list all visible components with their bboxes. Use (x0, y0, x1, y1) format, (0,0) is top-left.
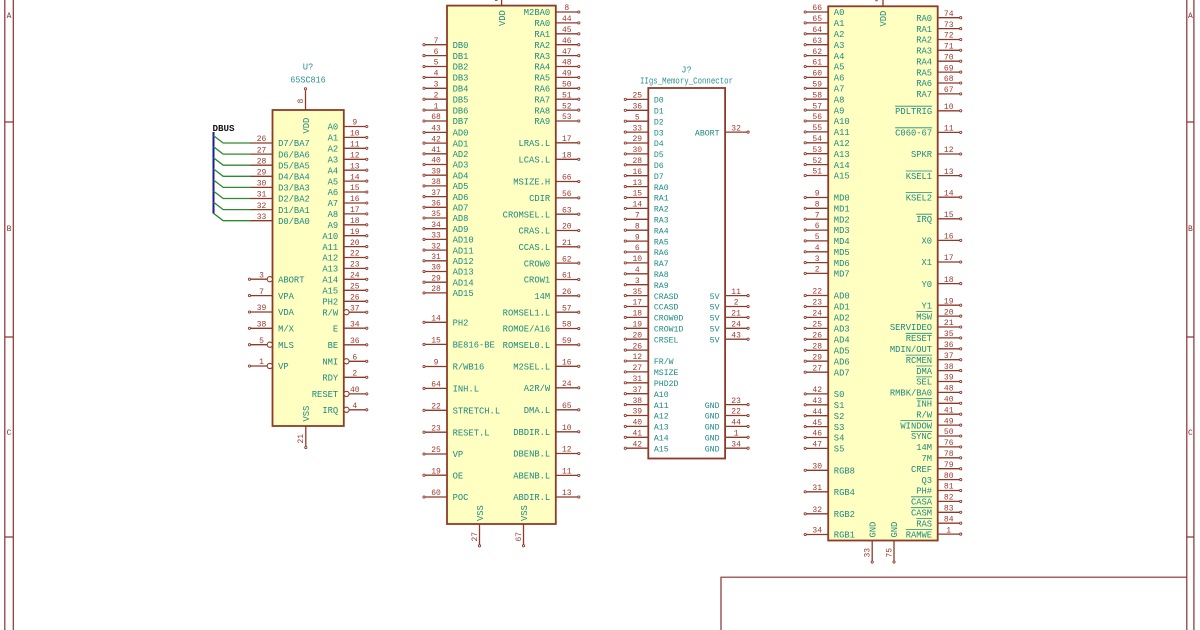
svg-text:LCAS.L: LCAS.L (519, 156, 551, 166)
svg-text:65: 65 (812, 15, 822, 24)
svg-text:GND: GND (890, 522, 900, 538)
svg-text:11: 11 (562, 468, 572, 477)
svg-text:DBENB.L: DBENB.L (513, 450, 550, 460)
svg-text:13: 13 (562, 489, 572, 498)
svg-text:A8: A8 (328, 210, 339, 220)
svg-text:12: 12 (944, 146, 954, 155)
svg-text:AD13: AD13 (453, 268, 474, 278)
svg-text:28: 28 (257, 157, 267, 166)
svg-text:RA7: RA7 (654, 260, 669, 269)
svg-text:17: 17 (944, 254, 954, 263)
svg-text:AD2: AD2 (834, 314, 850, 324)
svg-text:A14: A14 (322, 276, 338, 286)
svg-text:RMBK/BA0: RMBK/BA0 (890, 389, 932, 399)
svg-text:RA3: RA3 (654, 217, 669, 226)
svg-text:35: 35 (431, 210, 441, 219)
svg-text:AD6: AD6 (453, 193, 469, 203)
svg-text:6: 6 (434, 48, 439, 57)
svg-text:MD5: MD5 (834, 248, 850, 258)
svg-text:7: 7 (434, 37, 439, 46)
svg-text:21: 21 (562, 239, 572, 248)
svg-text:R/WB16: R/WB16 (453, 363, 485, 373)
svg-text:4: 4 (815, 244, 820, 253)
svg-text:LRAS.L: LRAS.L (519, 139, 551, 149)
svg-text:45: 45 (562, 26, 572, 35)
svg-text:RA4: RA4 (654, 227, 669, 236)
svg-text:8: 8 (297, 99, 306, 104)
svg-text:A12: A12 (654, 413, 669, 422)
svg-text:6: 6 (815, 222, 820, 231)
svg-text:36: 36 (632, 103, 642, 112)
svg-text:41: 41 (431, 146, 441, 155)
svg-text:24: 24 (562, 380, 572, 389)
svg-text:47: 47 (812, 441, 822, 450)
svg-text:AD1: AD1 (834, 303, 850, 313)
svg-text:7M: 7M (922, 454, 933, 464)
svg-text:DB6: DB6 (453, 106, 469, 116)
svg-text:S2: S2 (834, 412, 845, 422)
svg-text:CRAS.L: CRAS.L (519, 227, 551, 237)
svg-text:60: 60 (812, 70, 822, 79)
svg-text:MD7: MD7 (834, 270, 850, 280)
svg-text:29: 29 (812, 353, 822, 362)
svg-text:22: 22 (812, 288, 822, 297)
svg-text:PH2: PH2 (453, 319, 469, 329)
svg-text:DB2: DB2 (453, 63, 469, 73)
svg-text:AD9: AD9 (453, 225, 469, 235)
svg-text:62: 62 (812, 48, 822, 57)
svg-text:R/W: R/W (916, 410, 933, 420)
svg-text:AD12: AD12 (453, 257, 474, 267)
svg-text:CROW1D: CROW1D (654, 326, 684, 335)
svg-text:23: 23 (731, 397, 741, 406)
svg-text:A7: A7 (834, 85, 845, 95)
svg-text:RGB4: RGB4 (834, 488, 855, 498)
svg-text:66: 66 (562, 174, 572, 183)
svg-text:R/W: R/W (322, 308, 339, 318)
svg-text:D7/BA7: D7/BA7 (278, 139, 310, 149)
svg-text:MDIN/OUT: MDIN/OUT (890, 345, 932, 355)
svg-text:MD6: MD6 (834, 259, 850, 269)
svg-text:CRSEL: CRSEL (654, 336, 679, 345)
svg-text:SYNC: SYNC (911, 432, 932, 442)
svg-text:A0: A0 (834, 8, 845, 18)
svg-text:27: 27 (632, 364, 642, 373)
svg-text:AD10: AD10 (453, 236, 474, 246)
svg-text:AD14: AD14 (453, 278, 474, 288)
svg-text:71: 71 (944, 43, 954, 52)
svg-text:A4: A4 (834, 52, 845, 62)
svg-text:RA0: RA0 (534, 19, 550, 29)
svg-text:AD11: AD11 (453, 246, 474, 256)
svg-text:33: 33 (431, 232, 441, 241)
svg-text:2: 2 (352, 370, 357, 379)
svg-text:M2SEL.L: M2SEL.L (513, 363, 550, 373)
svg-text:80: 80 (944, 472, 954, 481)
svg-text:A10: A10 (322, 232, 338, 242)
svg-text:28: 28 (812, 343, 822, 352)
svg-text:D3/BA3: D3/BA3 (278, 184, 310, 194)
svg-text:GND: GND (705, 445, 720, 454)
svg-text:15: 15 (944, 211, 954, 220)
svg-text:GND: GND (705, 435, 720, 444)
svg-text:AD7: AD7 (453, 204, 469, 214)
svg-text:AD6: AD6 (834, 357, 850, 367)
svg-text:VSS: VSS (520, 505, 530, 521)
svg-text:59: 59 (812, 81, 822, 90)
svg-text:17: 17 (350, 206, 360, 215)
svg-text:RA4: RA4 (916, 57, 932, 67)
svg-text:AD4: AD4 (834, 336, 850, 346)
svg-text:D5: D5 (654, 151, 664, 160)
svg-text:D6: D6 (654, 162, 664, 171)
svg-text:17: 17 (562, 135, 572, 144)
svg-text:24: 24 (812, 310, 822, 319)
svg-text:B: B (1188, 225, 1193, 234)
svg-text:ROMOE/A16: ROMOE/A16 (503, 325, 551, 335)
svg-text:M2BA0: M2BA0 (524, 8, 550, 18)
svg-text:2: 2 (434, 91, 439, 100)
svg-text:3: 3 (434, 81, 439, 90)
svg-text:63: 63 (562, 206, 572, 215)
svg-text:6: 6 (352, 354, 357, 363)
svg-text:72: 72 (944, 32, 954, 41)
svg-text:AD5: AD5 (834, 347, 850, 357)
svg-text:DB0: DB0 (453, 41, 469, 51)
svg-text:43: 43 (431, 125, 441, 134)
svg-text:25: 25 (632, 92, 642, 101)
svg-text:A11: A11 (834, 128, 850, 138)
svg-text:MSIZE: MSIZE (654, 369, 679, 378)
svg-text:RA2: RA2 (916, 36, 932, 46)
svg-text:GND: GND (705, 402, 720, 411)
svg-text:44: 44 (731, 419, 741, 428)
svg-text:DB3: DB3 (453, 74, 469, 84)
svg-text:MLS: MLS (278, 341, 294, 351)
svg-text:RA9: RA9 (654, 282, 669, 291)
svg-text:DMA.L: DMA.L (524, 406, 550, 416)
svg-text:81: 81 (944, 483, 954, 492)
svg-text:6: 6 (635, 244, 640, 253)
svg-text:57: 57 (812, 102, 822, 111)
svg-text:A13: A13 (322, 265, 338, 275)
svg-text:12: 12 (632, 353, 642, 362)
svg-text:39: 39 (257, 304, 267, 313)
svg-text:D6/BA6: D6/BA6 (278, 150, 310, 160)
svg-text:56: 56 (562, 190, 572, 199)
svg-text:MD3: MD3 (834, 226, 850, 236)
svg-text:10: 10 (350, 130, 360, 139)
svg-text:MD4: MD4 (834, 237, 850, 247)
svg-text:5V: 5V (710, 304, 720, 313)
svg-text:RCMEN: RCMEN (906, 356, 932, 366)
svg-text:20: 20 (350, 239, 360, 248)
svg-text:19: 19 (431, 467, 441, 476)
svg-text:63: 63 (812, 37, 822, 46)
svg-text:NMI: NMI (322, 358, 338, 368)
svg-text:A2R/W: A2R/W (524, 384, 551, 394)
svg-text:CCAS.L: CCAS.L (519, 243, 551, 253)
svg-text:DBUS: DBUS (213, 123, 236, 134)
svg-text:31: 31 (632, 375, 642, 384)
svg-text:40: 40 (944, 396, 954, 405)
svg-text:POC: POC (453, 493, 469, 503)
svg-text:DB1: DB1 (453, 52, 469, 62)
svg-text:STRETCH.L: STRETCH.L (453, 407, 501, 417)
svg-text:C: C (7, 429, 12, 438)
svg-text:14: 14 (431, 315, 441, 324)
svg-text:AD0: AD0 (453, 129, 469, 139)
svg-text:56: 56 (812, 113, 822, 122)
svg-text:36: 36 (350, 337, 360, 346)
svg-text:74: 74 (944, 10, 954, 19)
svg-text:RA1: RA1 (534, 30, 550, 40)
svg-text:CROMSEL.L: CROMSEL.L (503, 210, 551, 220)
svg-text:A8: A8 (834, 95, 845, 105)
svg-text:A: A (1188, 12, 1193, 21)
svg-text:23: 23 (812, 299, 822, 308)
svg-text:4: 4 (352, 402, 357, 411)
svg-text:A15: A15 (322, 287, 338, 297)
svg-text:13: 13 (632, 179, 642, 188)
svg-text:MSIZE.H: MSIZE.H (513, 178, 550, 188)
svg-text:9: 9 (434, 359, 439, 368)
svg-text:76: 76 (944, 439, 954, 448)
svg-text:VDD: VDD (879, 11, 889, 27)
svg-text:7: 7 (259, 288, 264, 297)
svg-text:73: 73 (944, 21, 954, 30)
svg-text:38: 38 (944, 363, 954, 372)
svg-text:DBDIR.L: DBDIR.L (513, 428, 550, 438)
svg-text:CROW0: CROW0 (524, 259, 550, 269)
svg-text:A15: A15 (834, 172, 850, 182)
svg-text:3: 3 (259, 271, 264, 280)
svg-text:VP: VP (278, 362, 289, 372)
svg-text:A6: A6 (834, 74, 845, 84)
svg-text:C: C (1188, 429, 1193, 438)
svg-text:5V: 5V (710, 326, 720, 335)
svg-text:A10: A10 (654, 391, 669, 400)
svg-text:8: 8 (635, 222, 640, 231)
svg-text:59: 59 (562, 337, 572, 346)
svg-text:AD3: AD3 (834, 325, 850, 335)
svg-text:RA8: RA8 (534, 106, 550, 116)
svg-text:69: 69 (944, 64, 954, 73)
svg-text:52: 52 (562, 102, 572, 111)
svg-text:33: 33 (864, 548, 873, 558)
svg-text:VDD: VDD (498, 10, 508, 26)
svg-text:30: 30 (632, 146, 642, 155)
svg-text:A3: A3 (834, 41, 845, 51)
svg-text:5V: 5V (710, 336, 720, 345)
svg-text:2: 2 (734, 299, 739, 308)
svg-text:X1: X1 (922, 258, 933, 268)
svg-text:33: 33 (632, 124, 642, 133)
svg-text:43: 43 (731, 331, 741, 340)
svg-text:RA8: RA8 (654, 271, 669, 280)
svg-text:S1: S1 (834, 401, 845, 411)
svg-text:22: 22 (431, 403, 441, 412)
svg-text:21: 21 (297, 434, 306, 444)
svg-text:20: 20 (944, 308, 954, 317)
svg-text:A4: A4 (328, 166, 339, 176)
svg-text:25: 25 (350, 283, 360, 292)
svg-text:CROW0D: CROW0D (654, 315, 684, 324)
svg-text:40: 40 (632, 419, 642, 428)
svg-text:DB5: DB5 (453, 95, 469, 105)
svg-text:16: 16 (562, 359, 572, 368)
svg-text:VSS: VSS (476, 505, 486, 521)
svg-text:17: 17 (632, 299, 642, 308)
svg-text:C060-67: C060-67 (895, 129, 932, 139)
svg-text:10: 10 (944, 103, 954, 112)
svg-text:DMA: DMA (916, 367, 933, 377)
svg-text:D7: D7 (654, 173, 664, 182)
svg-text:22: 22 (731, 408, 741, 417)
svg-text:3: 3 (635, 277, 640, 286)
svg-text:49: 49 (562, 70, 572, 79)
svg-text:A11: A11 (322, 243, 338, 253)
svg-text:3: 3 (815, 255, 820, 264)
svg-text:50: 50 (562, 81, 572, 90)
svg-text:16: 16 (632, 168, 642, 177)
svg-text:20: 20 (562, 223, 572, 232)
svg-text:D0/BA0: D0/BA0 (278, 217, 310, 227)
svg-text:RA6: RA6 (654, 249, 669, 258)
svg-text:Y1: Y1 (922, 301, 933, 311)
svg-text:A14: A14 (654, 435, 669, 444)
svg-text:VP: VP (453, 450, 464, 460)
svg-text:4: 4 (434, 70, 439, 79)
svg-text:ROMSEL0.L: ROMSEL0.L (503, 341, 551, 351)
svg-text:29: 29 (431, 274, 441, 283)
svg-text:RA0: RA0 (916, 14, 932, 24)
svg-text:VDD: VDD (302, 118, 312, 134)
svg-text:Y0: Y0 (922, 280, 933, 290)
svg-text:S4: S4 (834, 434, 845, 444)
svg-text:10: 10 (562, 424, 572, 433)
svg-text:RESET: RESET (312, 390, 338, 400)
svg-text:MSW: MSW (916, 312, 933, 322)
svg-text:48: 48 (562, 59, 572, 68)
svg-text:A6: A6 (328, 188, 339, 198)
svg-text:IRQ: IRQ (916, 215, 932, 225)
svg-text:A12: A12 (322, 254, 338, 264)
svg-text:21: 21 (731, 310, 741, 319)
svg-text:RDY: RDY (322, 374, 339, 384)
svg-text:5V: 5V (710, 315, 720, 324)
svg-text:18: 18 (944, 276, 954, 285)
svg-text:VSS: VSS (302, 406, 312, 422)
svg-text:GND: GND (705, 424, 720, 433)
svg-text:AD1: AD1 (453, 139, 469, 149)
svg-text:PH2: PH2 (322, 298, 338, 308)
svg-text:RA3: RA3 (916, 47, 932, 57)
svg-text:60: 60 (431, 489, 441, 498)
svg-text:27: 27 (812, 364, 822, 373)
svg-text:KSEL1: KSEL1 (906, 172, 932, 182)
svg-text:WINDOW: WINDOW (900, 421, 932, 431)
svg-text:42: 42 (812, 386, 822, 395)
svg-text:18: 18 (562, 152, 572, 161)
svg-text:35: 35 (632, 288, 642, 297)
svg-text:58: 58 (812, 91, 822, 100)
svg-text:5: 5 (434, 59, 439, 68)
svg-text:RA4: RA4 (534, 63, 550, 73)
svg-text:23: 23 (350, 261, 360, 270)
svg-text:CASM: CASM (911, 509, 932, 519)
svg-text:62: 62 (562, 255, 572, 264)
svg-text:32: 32 (731, 124, 741, 133)
svg-text:D5/BA5: D5/BA5 (278, 161, 310, 171)
svg-text:54: 54 (812, 135, 822, 144)
svg-text:67: 67 (944, 86, 954, 95)
svg-text:CRASD: CRASD (654, 293, 679, 302)
svg-text:36: 36 (944, 341, 954, 350)
svg-text:31: 31 (431, 253, 441, 262)
svg-text:A14: A14 (834, 161, 850, 171)
svg-text:RA2: RA2 (534, 41, 550, 51)
svg-text:MD0: MD0 (834, 194, 850, 204)
svg-text:53: 53 (812, 146, 822, 155)
svg-text:A0: A0 (328, 123, 339, 133)
svg-text:A5: A5 (328, 177, 339, 187)
svg-text:A11: A11 (654, 402, 669, 411)
svg-text:D2/BA2: D2/BA2 (278, 195, 310, 205)
svg-text:D4: D4 (654, 140, 664, 149)
svg-text:48: 48 (944, 385, 954, 394)
svg-text:25: 25 (431, 446, 441, 455)
svg-text:65SC816: 65SC816 (290, 76, 326, 86)
svg-text:11: 11 (944, 125, 954, 134)
svg-text:PH#: PH# (916, 487, 932, 497)
svg-text:S0: S0 (834, 390, 845, 400)
svg-text:29: 29 (632, 135, 642, 144)
svg-text:14: 14 (350, 173, 360, 182)
svg-text:J?: J? (681, 66, 692, 76)
svg-text:8: 8 (564, 4, 569, 13)
svg-text:GND: GND (868, 522, 878, 538)
svg-text:7: 7 (635, 212, 640, 221)
svg-text:AD5: AD5 (453, 182, 469, 192)
svg-text:31: 31 (812, 484, 822, 493)
svg-text:18: 18 (632, 310, 642, 319)
svg-text:7: 7 (815, 211, 820, 220)
svg-text:RAS: RAS (916, 519, 932, 529)
svg-text:ABORT: ABORT (278, 275, 304, 285)
svg-text:RGB8: RGB8 (834, 467, 855, 477)
svg-text:23: 23 (431, 424, 441, 433)
svg-text:82: 82 (944, 494, 954, 503)
svg-text:39: 39 (431, 167, 441, 176)
svg-text:9: 9 (635, 233, 640, 242)
svg-text:12: 12 (562, 446, 572, 455)
svg-text:40: 40 (431, 157, 441, 166)
svg-text:4: 4 (635, 266, 640, 275)
svg-text:MD2: MD2 (834, 215, 850, 225)
svg-text:27: 27 (257, 146, 267, 155)
svg-text:44: 44 (812, 408, 822, 417)
svg-text:47: 47 (562, 48, 572, 57)
svg-text:A2: A2 (834, 30, 845, 40)
svg-text:15: 15 (632, 190, 642, 199)
svg-text:1: 1 (434, 102, 439, 111)
svg-text:INH.L: INH.L (453, 385, 479, 395)
svg-text:28: 28 (431, 285, 441, 294)
svg-text:CREF: CREF (911, 465, 932, 475)
svg-text:D3: D3 (654, 129, 664, 138)
svg-text:A13: A13 (654, 424, 669, 433)
